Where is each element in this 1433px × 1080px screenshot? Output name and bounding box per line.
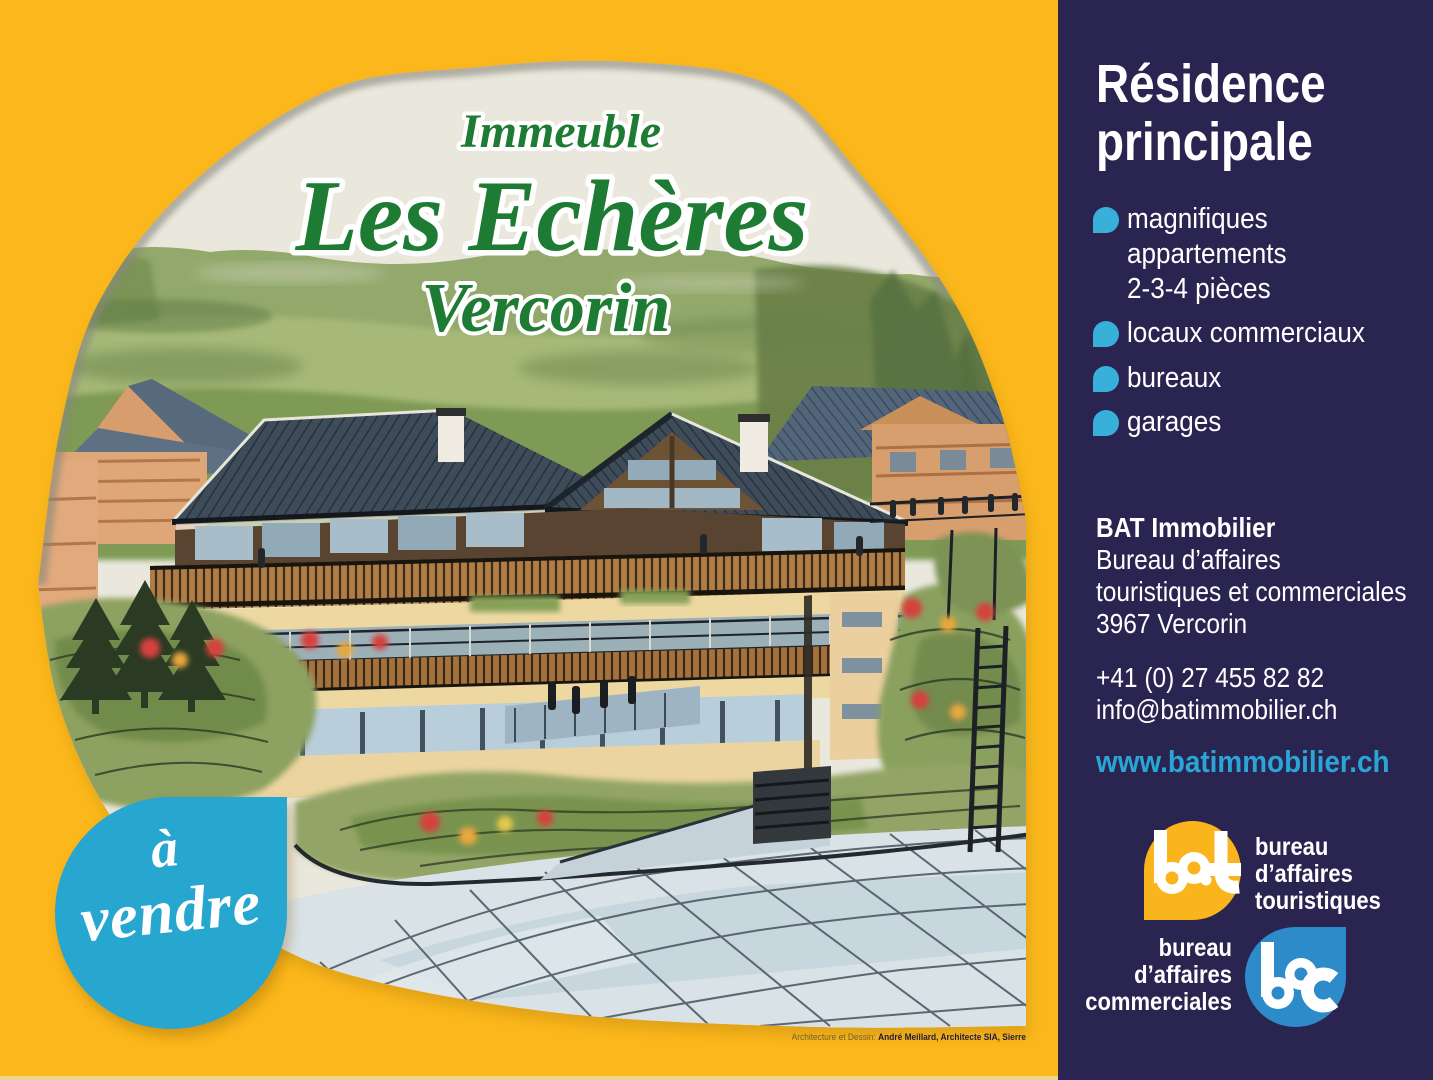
svg-text:Vercorin: Vercorin <box>422 270 671 347</box>
svg-text:Les Echères: Les Echères <box>295 160 809 273</box>
svg-text:Immeuble: Immeuble <box>460 105 661 158</box>
